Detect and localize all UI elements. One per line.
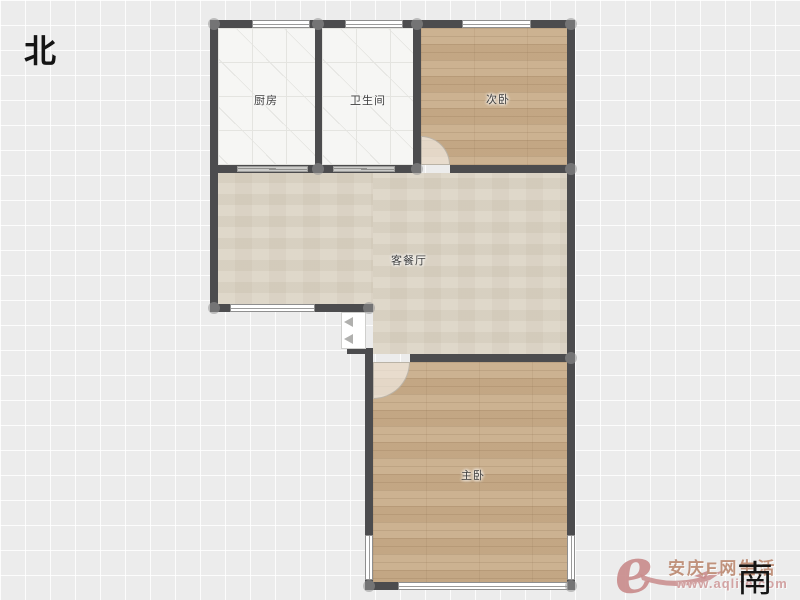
wall-cap: [565, 163, 577, 175]
wall-cap: [363, 580, 375, 592]
wall-cap: [565, 18, 577, 30]
bedroom2-label: 次卧: [486, 91, 510, 107]
wall-east-upper: [567, 20, 575, 535]
wall-cap: [411, 18, 423, 30]
wall-cap: [312, 18, 324, 30]
entry-door-swing-icon: [344, 334, 353, 344]
kitchen-sliding-door: [237, 166, 308, 172]
bathroom-label: 卫生间: [350, 92, 386, 108]
bathroom-window: [345, 20, 403, 28]
bathroom-sliding-door: [333, 166, 395, 172]
floor-plan: 厨房 卫生间 次卧 客餐厅 主卧: [0, 0, 800, 600]
wall-bath-bedroom2-divider: [413, 28, 421, 173]
master-label: 主卧: [461, 467, 485, 483]
wall-cap: [208, 18, 220, 30]
wall-cap: [312, 163, 324, 175]
wall-living-master-divider: [410, 354, 567, 362]
master-west-window: [365, 535, 373, 580]
master-east-window: [567, 535, 575, 580]
wall-master-west: [365, 353, 373, 535]
kitchen-label: 厨房: [254, 92, 278, 108]
wall-kitchen-bath-divider: [315, 28, 322, 173]
kitchen-window: [252, 20, 310, 28]
bedroom2-window: [462, 20, 531, 28]
compass-south-label: 南: [737, 550, 773, 600]
wall-under-bedroom2: [450, 165, 567, 173]
living-label: 客餐厅: [391, 252, 427, 268]
wall-cap: [565, 352, 577, 364]
wall-cap: [208, 302, 220, 314]
wall-cap: [565, 580, 577, 592]
floor-plan-page: 北 南: [0, 0, 800, 600]
wall-cap: [411, 163, 423, 175]
entry-door: [341, 312, 366, 349]
master-south-window: [398, 582, 568, 590]
wall-cap: [363, 302, 375, 314]
living-window: [230, 304, 315, 312]
entry-door-swing-icon: [344, 317, 353, 327]
